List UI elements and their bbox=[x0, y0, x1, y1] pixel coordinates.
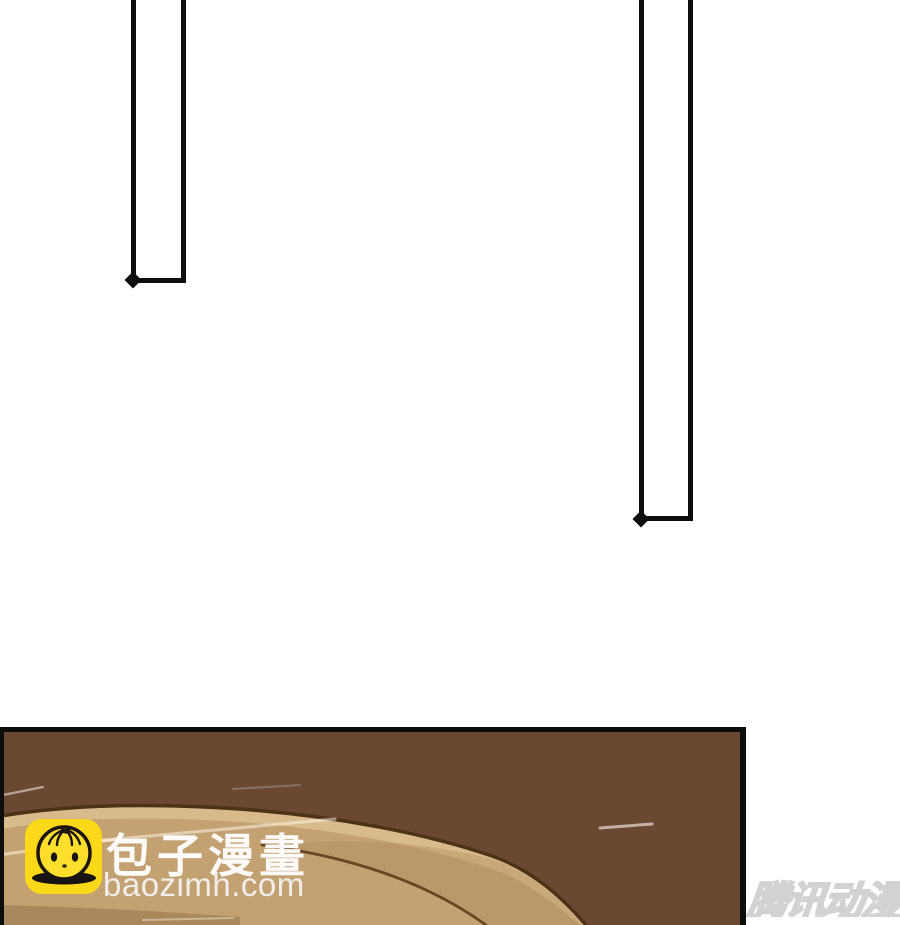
comic-page: 包子漫畫 baozimh.com 腾讯动漫 bbox=[0, 0, 900, 925]
tencent-comics-watermark: 腾讯动漫 bbox=[746, 869, 900, 917]
tall-panel-frame-left bbox=[131, 0, 186, 283]
baozimh-url: baozimh.com bbox=[103, 866, 305, 904]
tall-panel-frame-right bbox=[639, 0, 693, 521]
baozi-mascot-icon bbox=[25, 819, 102, 894]
